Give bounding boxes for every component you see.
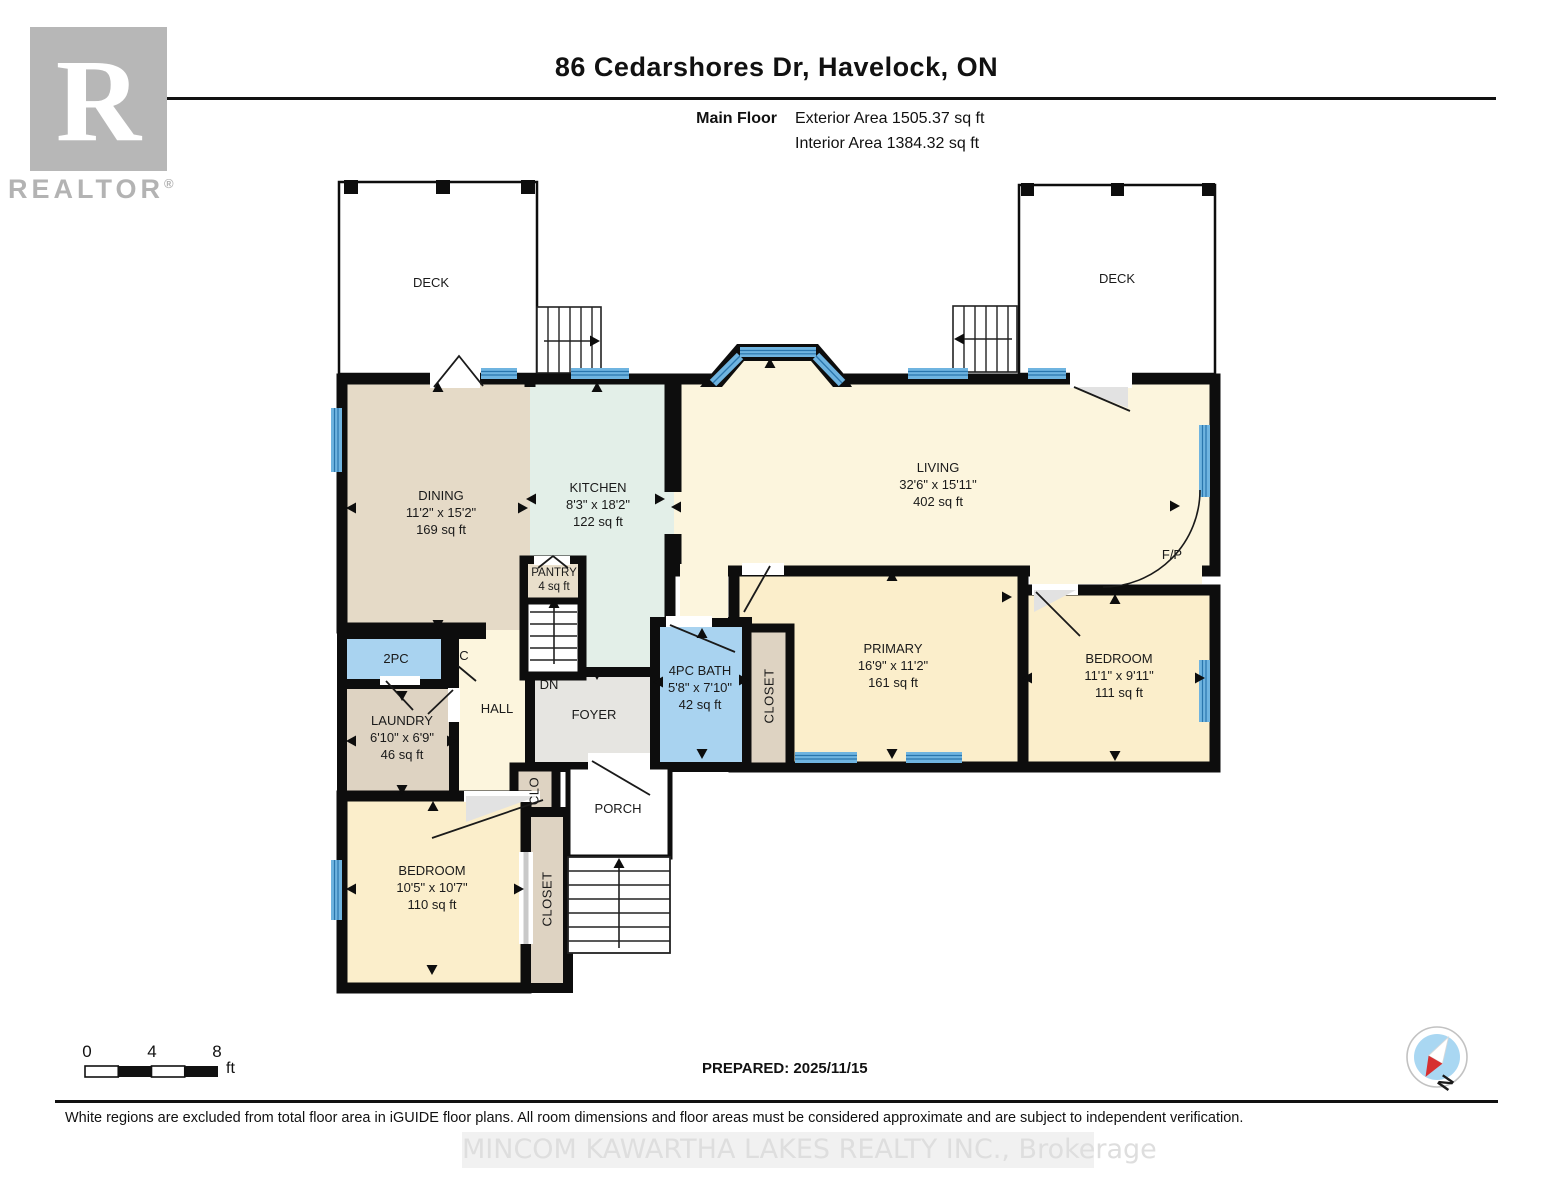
room-dims: 16'9" x 11'2" xyxy=(858,657,928,674)
porch-stairs xyxy=(568,857,670,953)
room-name: BEDROOM xyxy=(1084,650,1153,667)
room-dims: 10'5" x 10'7" xyxy=(396,879,467,896)
brokerage-watermark: MINCOM KAWARTHA LAKES REALTY INC., Broke… xyxy=(462,1132,1094,1168)
room-name: PANTRY xyxy=(531,566,577,580)
room-label-deck-right: DECK xyxy=(1099,270,1135,287)
room-name: FOYER xyxy=(572,706,617,723)
room-name: DN xyxy=(540,676,559,693)
room-label-kitchen: KITCHEN 8'3" x 18'2" 122 sq ft xyxy=(566,479,630,530)
room-name: LIVING xyxy=(899,459,977,476)
bay-window xyxy=(700,344,852,387)
room-label-foyer: FOYER xyxy=(572,706,617,723)
room-name: PORCH xyxy=(595,800,642,817)
room-dims: 11'1" x 9'11" xyxy=(1084,667,1153,684)
room-label-closet-bottom: CLOSET xyxy=(540,871,555,926)
room-label-porch: PORCH xyxy=(595,800,642,817)
room-area: 46 sq ft xyxy=(370,746,434,763)
room-label-deck-left: DECK xyxy=(413,274,449,291)
room-area: 122 sq ft xyxy=(566,513,630,530)
scale-bar xyxy=(85,1066,218,1077)
room-label-fireplace: F/P xyxy=(1162,546,1182,563)
room-area: 402 sq ft xyxy=(899,493,977,510)
room-dims: 6'10" x 6'9" xyxy=(370,729,434,746)
room-label-dn: DN xyxy=(540,676,559,693)
room-area: 4 sq ft xyxy=(531,580,577,594)
room-dims: 5'8" x 7'10" xyxy=(668,679,732,696)
room-name: DECK xyxy=(1099,270,1135,287)
room-area: 161 sq ft xyxy=(858,674,928,691)
room-name: BEDROOM xyxy=(396,862,467,879)
room-name: DECK xyxy=(413,274,449,291)
room-name: PRIMARY xyxy=(858,640,928,657)
room-name: F/P xyxy=(1162,546,1182,563)
room-area: 42 sq ft xyxy=(668,696,732,713)
room-dims: 11'2" x 15'2" xyxy=(406,504,476,521)
room-area: 110 sq ft xyxy=(396,896,467,913)
room-label-bedroom-bottom: BEDROOM 10'5" x 10'7" 110 sq ft xyxy=(396,862,467,913)
room-label-2pc: 2PC xyxy=(383,650,408,667)
room-label-pantry: PANTRY 4 sq ft xyxy=(531,566,577,594)
room-label-dining: DINING 11'2" x 15'2" 169 sq ft xyxy=(406,487,476,538)
room-label-living: LIVING 32'6" x 15'11" 402 sq ft xyxy=(899,459,977,510)
room-label-bedroom-right: BEDROOM 11'1" x 9'11" 111 sq ft xyxy=(1084,650,1153,701)
room-dims: 8'3" x 18'2" xyxy=(566,496,630,513)
room-name: LAUNDRY xyxy=(370,712,434,729)
room-label-laundry: LAUNDRY 6'10" x 6'9" 46 sq ft xyxy=(370,712,434,763)
room-label-primary: PRIMARY 16'9" x 11'2" 161 sq ft xyxy=(858,640,928,691)
room-name: DINING xyxy=(406,487,476,504)
compass: N xyxy=(1407,1027,1467,1095)
deck-left-stairs xyxy=(537,307,601,373)
room-name: HALL xyxy=(481,700,514,717)
room-label-bath: 4PC BATH 5'8" x 7'10" 42 sq ft xyxy=(668,662,732,713)
room-label-closet-mid: CLOSET xyxy=(762,668,777,723)
room-name: 2PC xyxy=(383,650,408,667)
room-dims: 32'6" x 15'11" xyxy=(899,476,977,493)
room-area: 169 sq ft xyxy=(406,521,476,538)
room-name: KITCHEN xyxy=(566,479,630,496)
room-label-clo: CLO xyxy=(527,777,542,805)
floor-plan-canvas: N xyxy=(0,0,1553,1200)
room-label-closet-c: C xyxy=(459,647,468,664)
room-name: C xyxy=(459,647,468,664)
deck-right-stairs xyxy=(953,306,1017,372)
room-name: 4PC BATH xyxy=(668,662,732,679)
room-label-hall: HALL xyxy=(481,700,514,717)
room-area: 111 sq ft xyxy=(1084,684,1153,701)
